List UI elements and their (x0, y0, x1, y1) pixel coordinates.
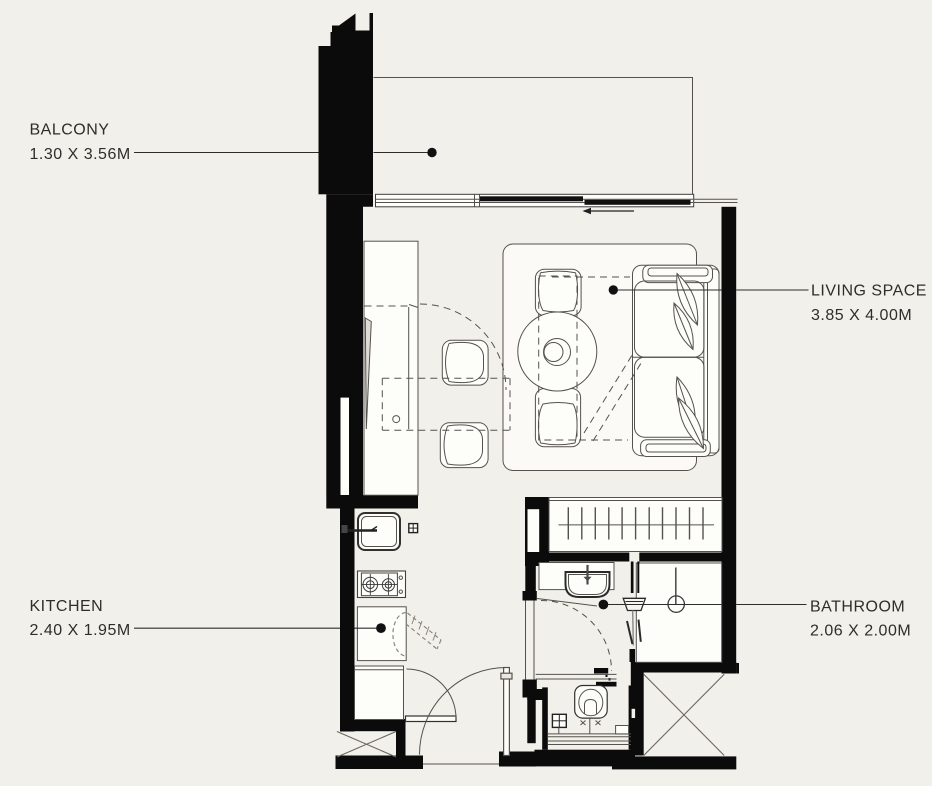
svg-text:2.06 X 2.00M: 2.06 X 2.00M (810, 622, 911, 639)
svg-text:BALCONY: BALCONY (30, 122, 110, 139)
svg-text:KITCHEN: KITCHEN (30, 598, 104, 615)
svg-text:2.40 X 1.95M: 2.40 X 1.95M (30, 622, 131, 639)
svg-text:LIVING SPACE: LIVING SPACE (811, 282, 927, 299)
svg-text:BATHROOM: BATHROOM (810, 599, 905, 616)
svg-text:1.30 X 3.56M: 1.30 X 3.56M (30, 146, 131, 163)
svg-text:3.85 X 4.00M: 3.85 X 4.00M (811, 307, 912, 324)
